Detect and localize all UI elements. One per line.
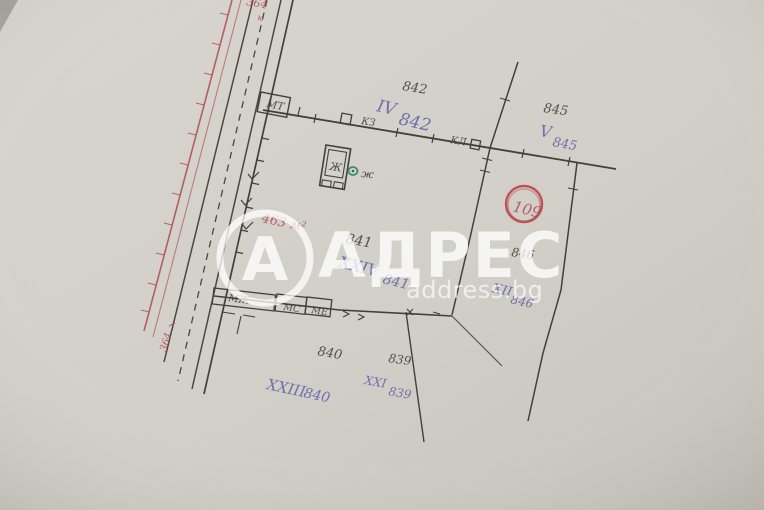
watermark: А АДРЕС address.bg — [220, 213, 565, 304]
cadastral-sketch-photo: МТ КЗ КЛ МЖ МС МЕ — [0, 0, 764, 510]
well-mark-label: ж — [361, 167, 375, 181]
survey-label-kz: КЗ — [360, 116, 377, 129]
watermark-logo-letter: А — [242, 225, 289, 295]
watermark-site: address.bg — [406, 276, 543, 304]
well-dot — [352, 170, 355, 173]
house-mark-label: Ж — [328, 160, 344, 175]
